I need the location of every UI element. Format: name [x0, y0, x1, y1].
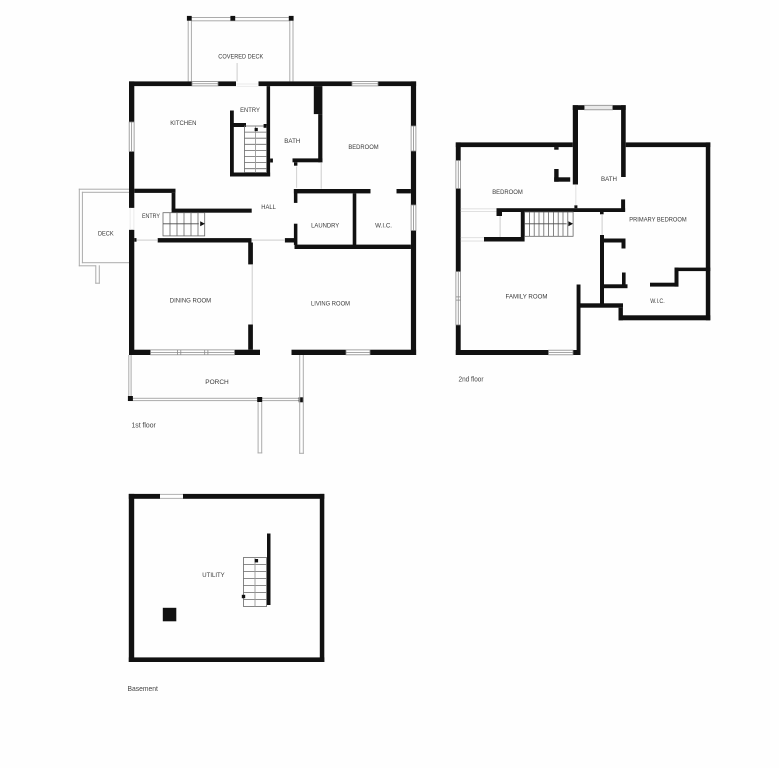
svg-text:KITCHEN: KITCHEN [170, 120, 196, 127]
svg-text:ENTRY: ENTRY [142, 213, 160, 220]
svg-text:COVERED DECK: COVERED DECK [218, 54, 263, 61]
svg-text:BEDROOM: BEDROOM [492, 189, 523, 196]
svg-text:BATH: BATH [284, 138, 300, 145]
svg-text:UTILITY: UTILITY [202, 572, 225, 579]
svg-text:PORCH: PORCH [205, 379, 229, 386]
svg-text:BEDROOM: BEDROOM [348, 144, 379, 151]
svg-text:FAMILY ROOM: FAMILY ROOM [506, 293, 548, 300]
svg-text:PRIMARY BEDROOM: PRIMARY BEDROOM [629, 216, 687, 223]
svg-text:DINING ROOM: DINING ROOM [170, 297, 212, 304]
svg-text:LAUNDRY: LAUNDRY [311, 222, 340, 229]
svg-text:DECK: DECK [98, 231, 114, 238]
svg-text:1st floor: 1st floor [132, 421, 157, 430]
svg-text:BATH: BATH [601, 176, 617, 183]
svg-text:Basement: Basement [128, 684, 158, 693]
svg-text:LIVING ROOM: LIVING ROOM [311, 301, 350, 308]
svg-text:2nd floor: 2nd floor [459, 375, 485, 384]
svg-text:ENTRY: ENTRY [240, 107, 260, 114]
svg-text:HALL: HALL [261, 204, 276, 211]
svg-text:W.I.C.: W.I.C. [375, 222, 392, 229]
svg-text:W.I.C.: W.I.C. [650, 298, 665, 305]
